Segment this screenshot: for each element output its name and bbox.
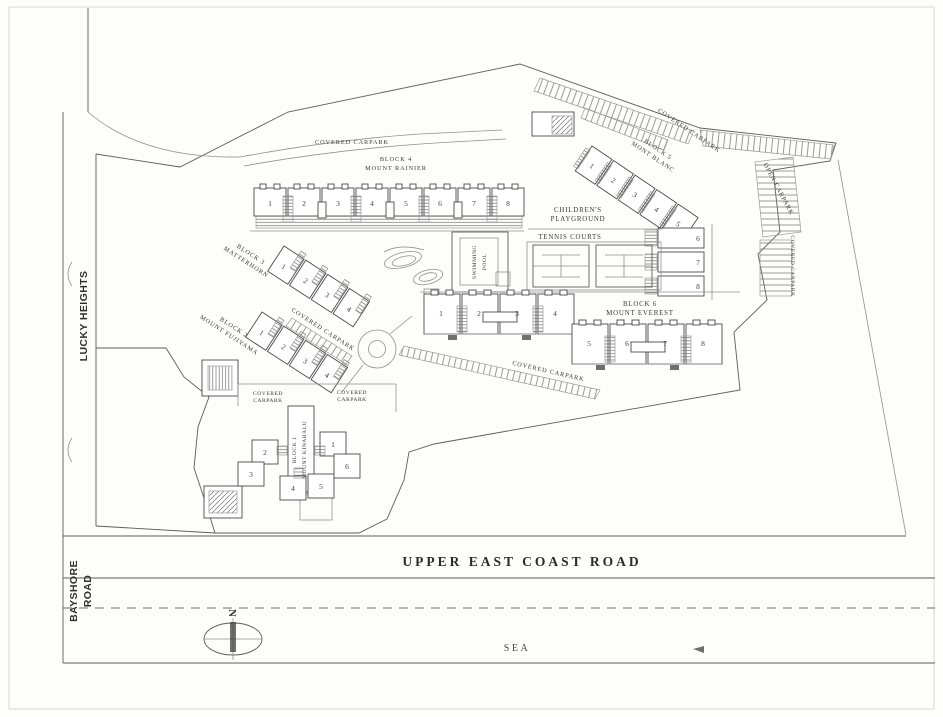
svg-text:2: 2 xyxy=(302,199,306,208)
bayshore-road-label-line2: ROAD xyxy=(82,575,94,608)
bayshore-road-label-line1: BAYSHORE xyxy=(68,560,80,622)
direction-arrow-icon xyxy=(693,646,704,653)
lucky-heights-label: LUCKY HEIGHTS xyxy=(78,271,90,362)
block-1-mount-kinabalu: COVERED CARPARK COVERED CARPARK BLOCK 1 … xyxy=(238,384,396,500)
svg-text:2: 2 xyxy=(477,309,481,318)
svg-text:4: 4 xyxy=(370,199,374,208)
svg-text:3: 3 xyxy=(336,199,340,208)
svg-text:SWIMMING: SWIMMING xyxy=(472,245,478,279)
sea-label: SEA xyxy=(504,643,530,654)
covered-carpark-label-east: COVERED CARPARK xyxy=(789,235,795,296)
block5-units-678: 6 7 8 xyxy=(645,224,712,300)
road-curve-marks xyxy=(68,262,72,462)
block-6-mount-everest: BLOCK 6 MOUNT EVEREST 1 2 3 4 5 6 xyxy=(420,290,740,370)
scan-border xyxy=(9,7,934,709)
block4-label-line2: MOUNT RAINIER xyxy=(365,165,427,172)
svg-text:COVERED: COVERED xyxy=(337,390,367,396)
svg-text:4: 4 xyxy=(291,484,295,493)
svg-text:COVERED CARPARK: COVERED CARPARK xyxy=(789,235,795,296)
block4-label-line1: BLOCK 4 xyxy=(380,156,412,163)
site-plan-drawing: COVERED CARPARK BLOCK 4 MOUNT RAINIER 1 xyxy=(0,0,943,717)
svg-text:3: 3 xyxy=(515,309,519,318)
svg-text:LUCKY HEIGHTS: LUCKY HEIGHTS xyxy=(78,271,90,362)
svg-text:8: 8 xyxy=(701,339,705,348)
svg-text:3: 3 xyxy=(249,470,253,479)
svg-text:4: 4 xyxy=(553,309,557,318)
north-compass-icon: N xyxy=(204,609,262,660)
svg-text:CARPARK: CARPARK xyxy=(253,398,282,404)
tennis-courts xyxy=(527,242,661,290)
svg-text:1: 1 xyxy=(268,199,272,208)
svg-text:BLOCK 1: BLOCK 1 xyxy=(292,437,298,464)
svg-text:ROAD: ROAD xyxy=(82,575,94,608)
covered-carpark-label-top: COVERED CARPARK xyxy=(315,139,389,146)
svg-text:MOUNT KINABALU: MOUNT KINABALU xyxy=(302,421,308,479)
covered-carpark-south-band: COVERED CARPARK xyxy=(399,346,600,399)
svg-text:1: 1 xyxy=(439,309,443,318)
svg-text:6: 6 xyxy=(438,199,442,208)
utility-building xyxy=(532,112,574,136)
svg-text:8: 8 xyxy=(696,282,700,291)
playground-label-line2: PLAYGROUND xyxy=(551,216,606,223)
svg-text:7: 7 xyxy=(472,199,476,208)
upper-east-coast-road-label: UPPER EAST COAST ROAD xyxy=(402,554,641,569)
svg-text:5: 5 xyxy=(404,199,408,208)
svg-text:6: 6 xyxy=(696,234,700,243)
playground-label-line1: CHILDREN'S xyxy=(554,207,602,214)
svg-text:6: 6 xyxy=(625,339,629,348)
svg-text:6: 6 xyxy=(345,462,349,471)
svg-text:5: 5 xyxy=(587,339,591,348)
svg-text:CARPARK: CARPARK xyxy=(337,397,366,403)
svg-text:5: 5 xyxy=(319,482,323,491)
svg-text:N: N xyxy=(226,609,238,617)
svg-text:7: 7 xyxy=(696,258,700,267)
svg-text:1: 1 xyxy=(331,440,335,449)
block6-label-line2: MOUNT EVEREST xyxy=(606,310,674,317)
tennis-courts-label: TENNIS COURTS xyxy=(538,234,601,241)
block-4-mount-rainier: 1 2 3 4 5 6 7 8 xyxy=(250,184,524,231)
svg-text:POOL: POOL xyxy=(482,254,488,271)
svg-text:BAYSHORE: BAYSHORE xyxy=(68,560,80,622)
svg-text:8: 8 xyxy=(506,199,510,208)
site-plan-page: COVERED CARPARK BLOCK 4 MOUNT RAINIER 1 xyxy=(0,0,943,717)
svg-text:7: 7 xyxy=(663,339,667,348)
block6-label-line1: BLOCK 6 xyxy=(623,301,657,308)
svg-text:COVERED: COVERED xyxy=(253,391,283,397)
block3-label: BLOCK 3 MATTERHORN xyxy=(222,238,274,280)
swimming-pool: SWIMMING POOL xyxy=(452,232,510,292)
svg-text:2: 2 xyxy=(263,448,267,457)
